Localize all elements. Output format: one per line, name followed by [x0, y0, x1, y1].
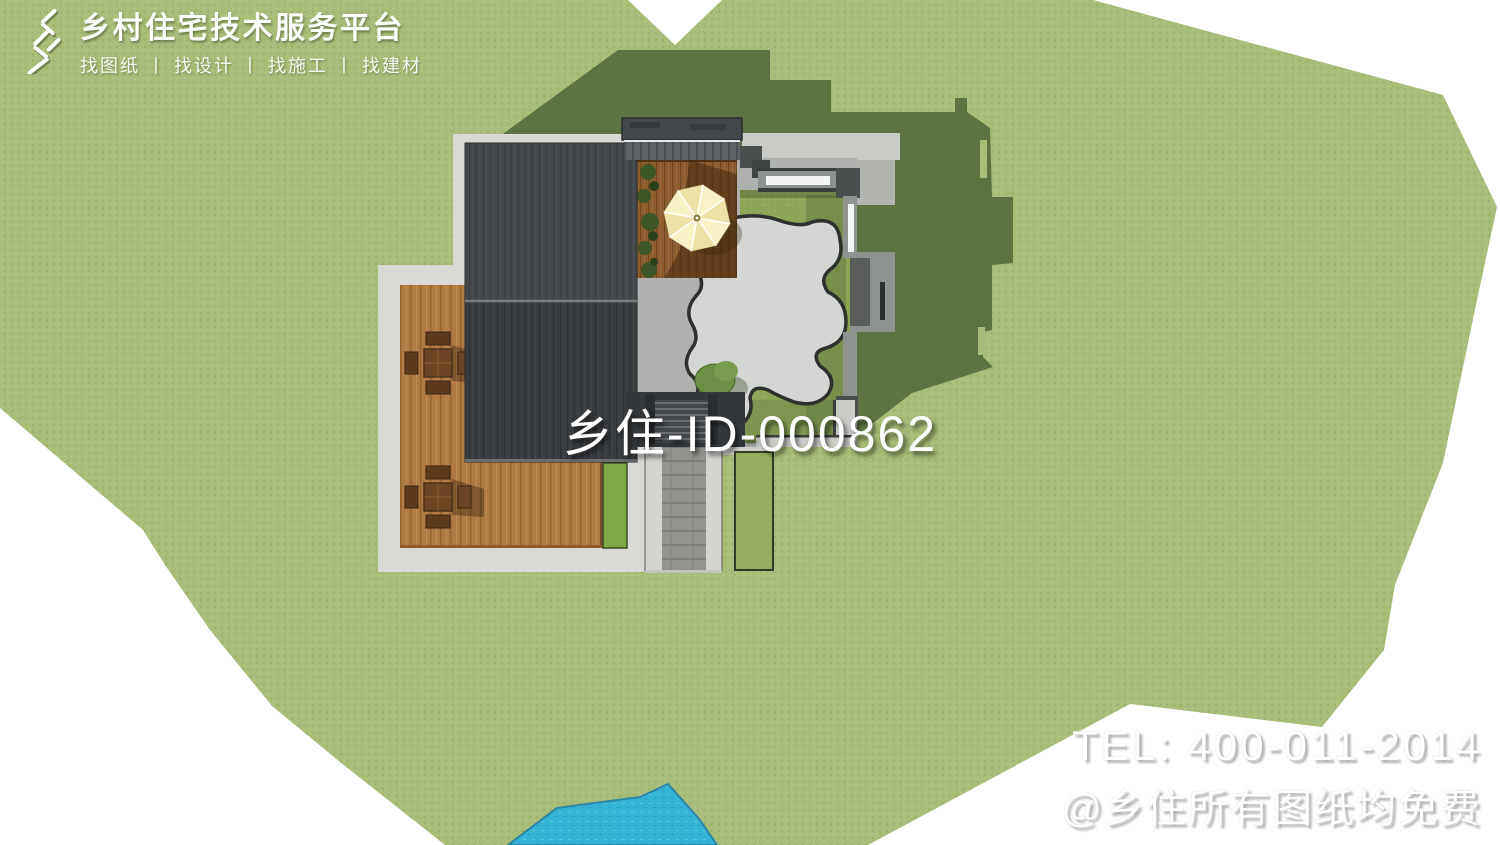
brand-block: 乡村住宅技术服务平台 找图纸 丨 找设计 丨 找施工 丨 找建材: [14, 4, 422, 78]
wall-corner-ne: [836, 168, 860, 198]
contact-block: TEL: 400-011-2014 @乡住所有图纸均免费: [1061, 722, 1482, 834]
planted-bed: [735, 452, 773, 570]
east-wall-window: [848, 204, 854, 252]
shadow-window-slit: [980, 140, 987, 178]
xiang-logo-icon: [14, 4, 72, 74]
north-wall-window: [766, 176, 830, 185]
deck-hedge-strip: [603, 463, 627, 548]
watermark-id: 乡住-ID-000862: [563, 394, 937, 466]
east-bay-door: [880, 282, 885, 320]
brand-subtitle: 找图纸 丨 找设计 丨 找施工 丨 找建材: [80, 52, 422, 78]
site-plan-rendering: 乡村住宅技术服务平台 找图纸 丨 找设计 丨 找施工 丨 找建材 乡住-ID-0…: [0, 0, 1500, 845]
east-wall-lower: [843, 332, 857, 402]
brand-title: 乡村住宅技术服务平台: [80, 12, 422, 45]
contact-tel: TEL: 400-011-2014: [1061, 722, 1482, 770]
shadow-window-slit: [978, 327, 985, 355]
northeast-wall-band: [857, 160, 895, 205]
contact-note: @乡住所有图纸均免费: [1061, 776, 1482, 834]
umbrella-deck: [637, 158, 742, 278]
entrance-canopy: [622, 118, 742, 160]
north-walkway: [742, 133, 900, 160]
